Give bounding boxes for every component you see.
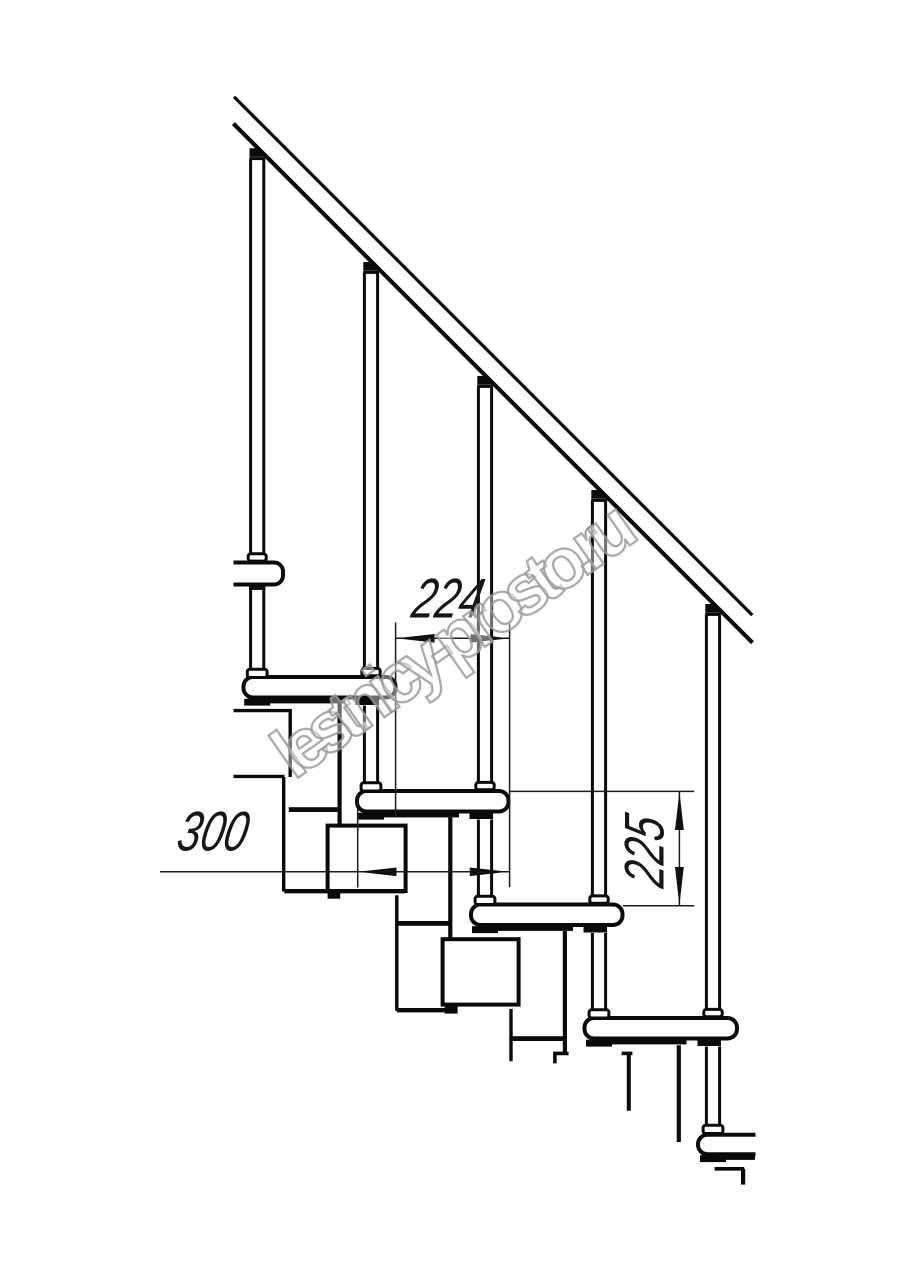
- svg-text:225: 225: [613, 809, 676, 892]
- svg-text:300: 300: [172, 800, 255, 863]
